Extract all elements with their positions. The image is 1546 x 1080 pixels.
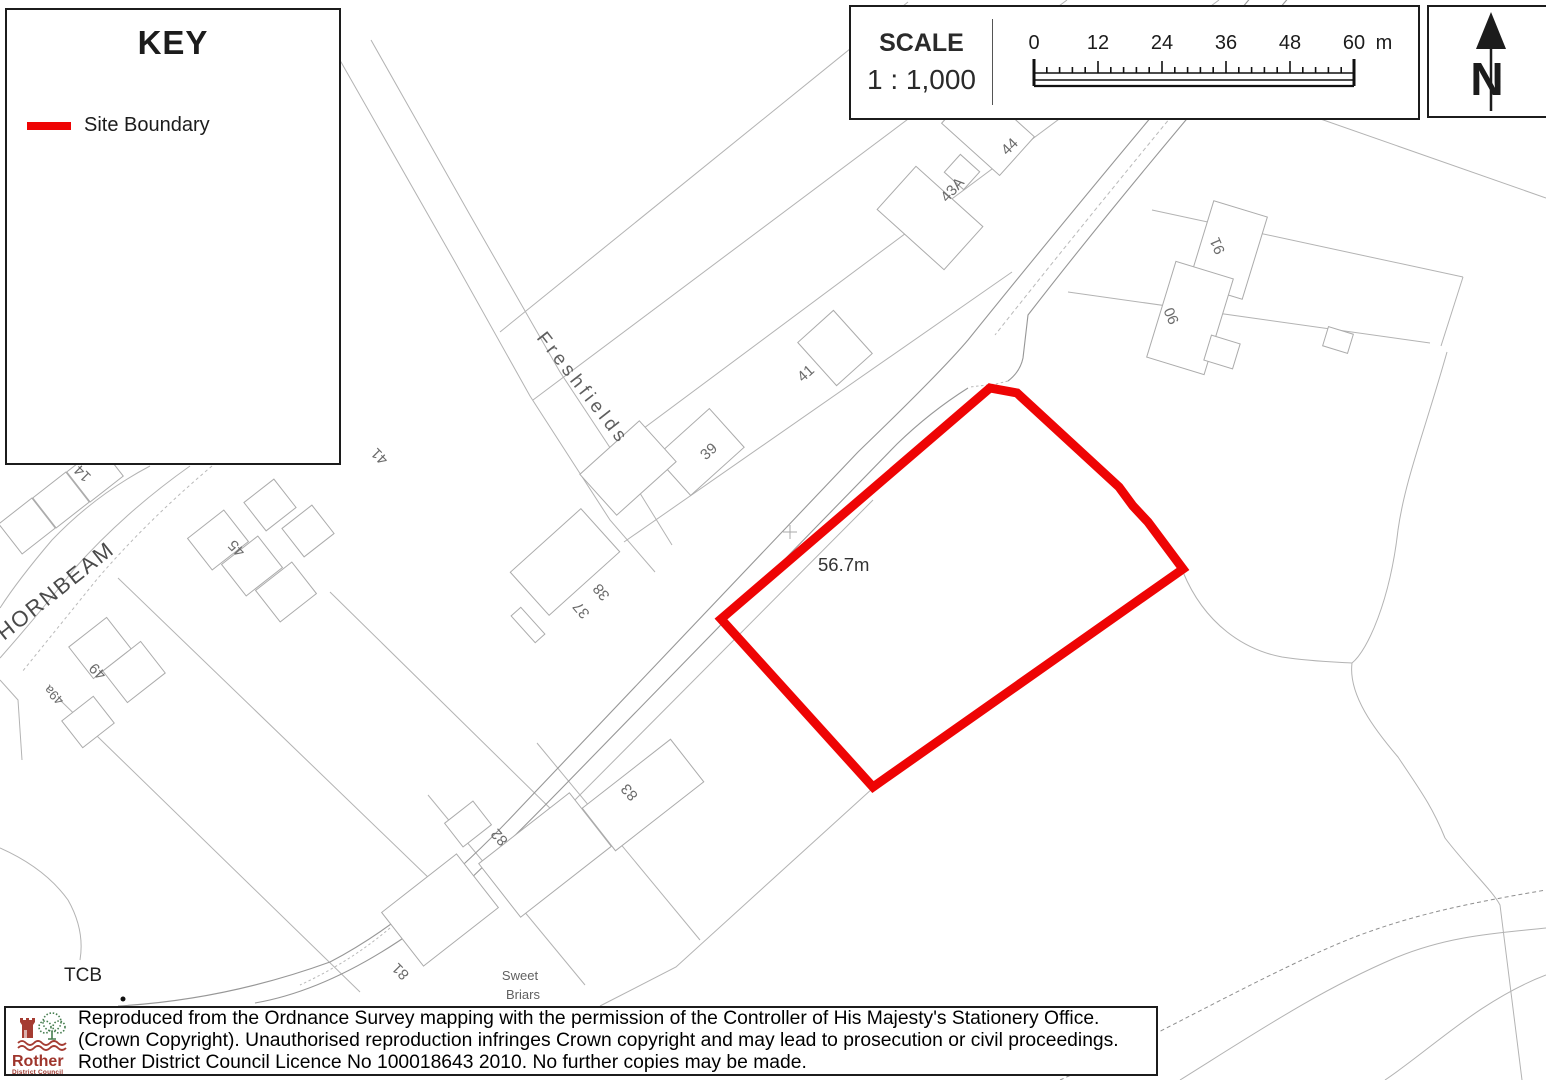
scale-tick-label: 60 — [1343, 32, 1365, 54]
rother-logo-icon — [12, 1008, 74, 1052]
map-label: 49a — [40, 682, 66, 708]
building — [445, 801, 492, 847]
map-label: TCB — [64, 965, 102, 986]
building — [1323, 327, 1354, 354]
scale-title: SCALE — [851, 29, 992, 58]
rother-district-council-logo: Rother District Council — [12, 1008, 78, 1076]
scale-divider — [992, 19, 993, 105]
copyright-text: Reproduced from the Ordnance Survey mapp… — [78, 1008, 1119, 1074]
grid-cross-icon — [783, 525, 797, 539]
scale-tick-label: 36 — [1215, 32, 1237, 54]
scale-text-block: SCALE 1 : 1,000 — [851, 7, 992, 118]
map-label: 41 — [368, 444, 392, 468]
building — [62, 696, 114, 747]
legend-row-site-boundary: Site Boundary — [27, 114, 339, 137]
copyright-footer: Rother District Council Reproduced from … — [4, 1006, 1158, 1076]
scale-tick-label: 48 — [1279, 32, 1301, 54]
site-location-plan: FreshfieldsHORNBEAM56.7mTCBSweetBriars39… — [0, 0, 1546, 1080]
scale-bar: 01224364860m — [1016, 9, 1416, 117]
scale-tick-label: 12 — [1087, 32, 1109, 54]
key-title: KEY — [7, 24, 339, 62]
map-label: 81 — [389, 959, 413, 983]
map-label: Sweet — [502, 968, 539, 983]
copyright-line-2: (Crown Copyright). Unauthorised reproduc… — [78, 1030, 1119, 1052]
map-label: 37 — [570, 598, 594, 622]
map-label: Freshfields — [532, 328, 633, 449]
key-panel: KEY Site Boundary — [5, 8, 341, 465]
map-label: Briars — [506, 987, 540, 1002]
scale-panel: SCALE 1 : 1,000 01224364860m — [849, 5, 1420, 120]
copyright-line-3: Rother District Council Licence No 10001… — [78, 1052, 1119, 1074]
map-label: 41 — [794, 362, 818, 386]
north-arrow-icon: N — [1429, 7, 1544, 116]
site-boundary-label: Site Boundary — [84, 114, 210, 137]
site-boundary-outline — [721, 388, 1183, 787]
building — [382, 854, 499, 966]
rother-logo-sub: District Council — [12, 1069, 78, 1076]
scale-ratio: 1 : 1,000 — [851, 64, 992, 96]
rother-logo-word: Rother — [12, 1055, 78, 1069]
tcb-marker-dot — [121, 997, 126, 1002]
scale-unit-label: m — [1376, 32, 1393, 54]
north-label: N — [1470, 53, 1503, 105]
building — [511, 607, 545, 642]
copyright-line-1: Reproduced from the Ordnance Survey mapp… — [78, 1008, 1119, 1030]
scale-tick-label: 0 — [1028, 32, 1039, 54]
map-label: 38 — [590, 580, 614, 604]
map-label: 56.7m — [818, 554, 869, 575]
north-panel: N — [1427, 5, 1546, 118]
site-boundary-swatch — [27, 122, 71, 130]
scale-tick-label: 24 — [1151, 32, 1173, 54]
